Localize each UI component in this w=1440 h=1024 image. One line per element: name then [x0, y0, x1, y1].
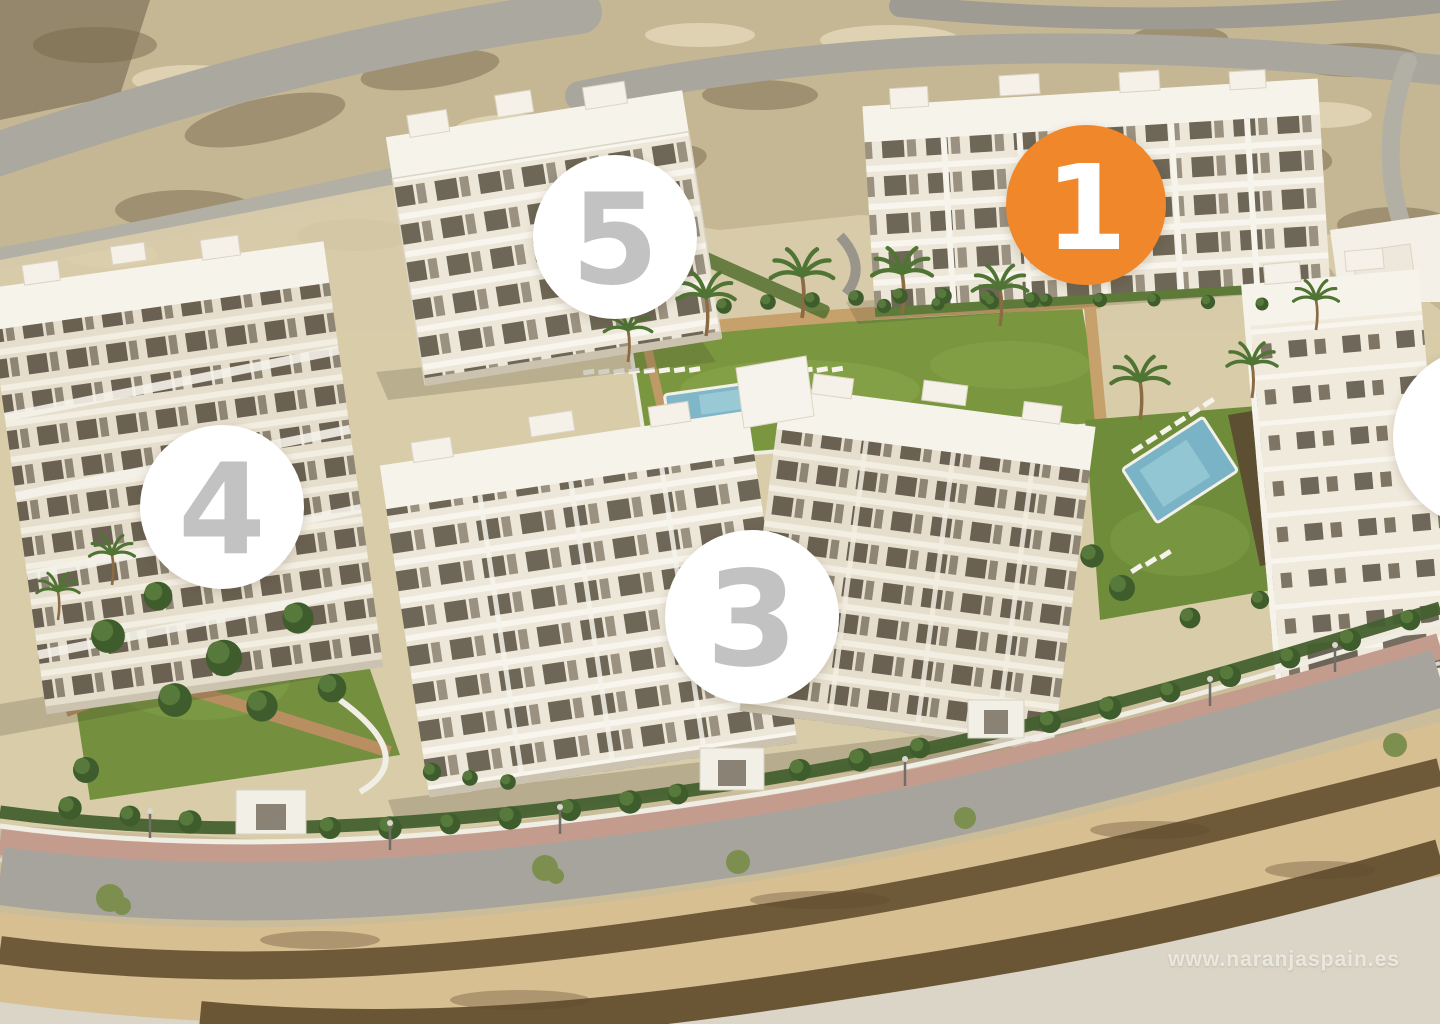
- aerial-render-scene: 5 1 4 3 www.naranjaspain.es: [0, 0, 1440, 1024]
- unit-badge-5[interactable]: 5: [533, 155, 697, 319]
- unit-badge-5-label: 5: [571, 177, 659, 303]
- entrance-gate-3: [968, 700, 1024, 738]
- entrance-gate-1: [236, 790, 306, 834]
- entrance-gate-2: [700, 748, 764, 790]
- unit-badge-4[interactable]: 4: [140, 425, 304, 589]
- watermark-text: www.naranjaspain.es: [1168, 948, 1400, 972]
- unit-badge-1-label: 1: [1045, 149, 1127, 267]
- unit-badge-3-label: 3: [706, 554, 798, 686]
- unit-badge-3[interactable]: 3: [665, 530, 839, 704]
- unit-badge-1[interactable]: 1: [1006, 125, 1166, 285]
- unit-badge-4-label: 4: [178, 447, 266, 573]
